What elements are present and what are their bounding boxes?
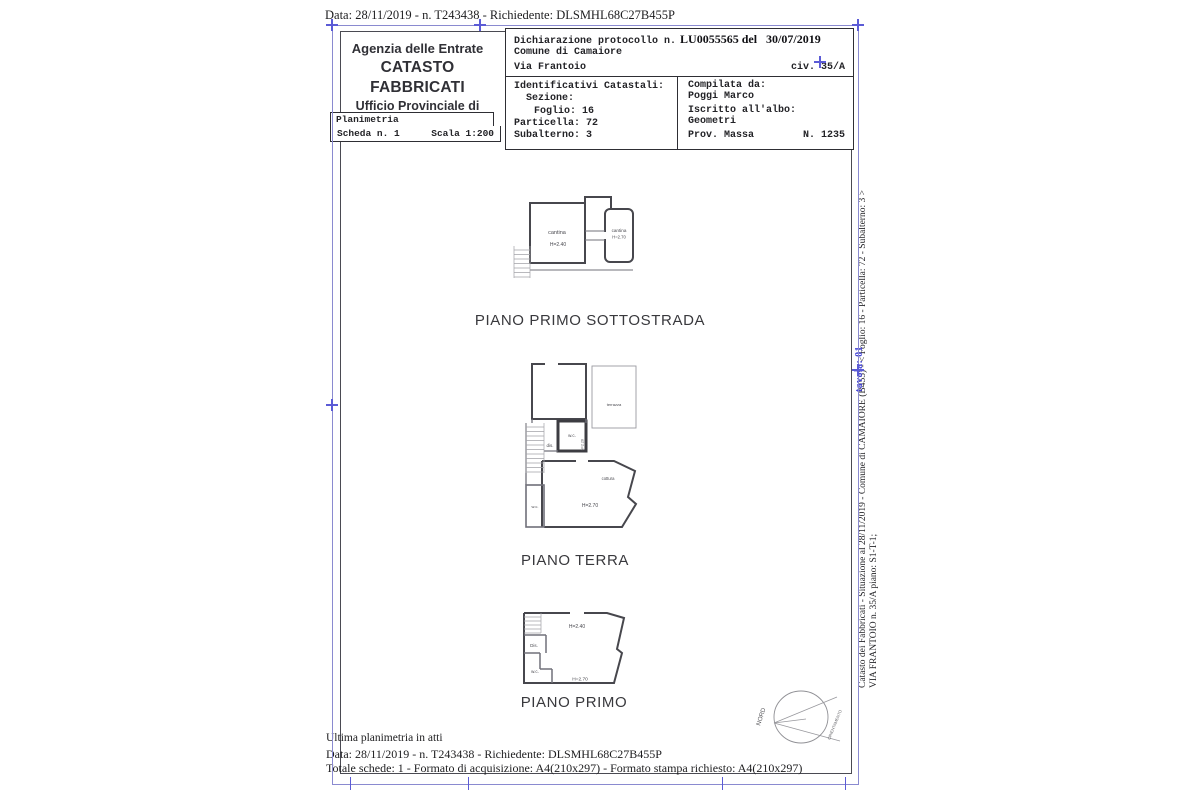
scheda-number: Scheda n. 1 (337, 128, 400, 139)
protocol-date: 30/07/2019 (766, 32, 821, 46)
footer-format-line: Totale schede: 1 - Formato di acquisizio… (326, 761, 802, 776)
compilata-da-label: Compilata da: (688, 81, 845, 92)
room-height-top: H=2.40 (569, 624, 585, 630)
sezione-value: Sezione: (514, 93, 677, 105)
ultima-planimetria-note: Ultima planimetria in atti (326, 732, 443, 744)
plan-title-primo: PIANO PRIMO (429, 694, 719, 711)
registration-tick (350, 777, 351, 790)
request-data-line: Data: 28/11/2019 - n. T243438 - Richiede… (325, 8, 675, 23)
cadastral-identifiers-section: Identificativi Catastali: Sezione: Fogli… (506, 76, 678, 149)
room-label-cantina-right: cantina (612, 228, 627, 233)
provincia-value: Prov. Massa (688, 131, 754, 142)
side-caption-line1: Catasto dei Fabbricati - Situazione al 2… (858, 223, 869, 688)
terrazza-outline (592, 366, 636, 428)
registration-mark (326, 399, 338, 411)
civic-number: civ. 35/A (791, 62, 845, 73)
protocol-line: Dichiarazione protocollo n.LU0055565del3… (514, 32, 821, 47)
albo-number: N. 1235 (803, 131, 845, 142)
albo-value: Geometri (688, 117, 845, 128)
compass-orientation-diagram: NORD ORIENTAMENTO (744, 680, 856, 758)
identificativi-title: Identificativi Catastali: (514, 81, 677, 93)
particella-value: Particella: 72 (514, 118, 677, 130)
compiler-section: Compilata da: Poggi Marco Iscritto all'a… (679, 76, 853, 149)
scheda-scala-box: Scheda n. 1 Scala 1:200 (330, 126, 501, 142)
side-blue-stamp: tavola: 01 (854, 346, 865, 392)
room-label-cantina-left: cantina (548, 230, 567, 236)
cadastral-document-page: Data: 28/11/2019 - n. T243438 - Richiede… (0, 0, 1200, 800)
declaration-address-section: Dichiarazione protocollo n.LU0055565del3… (506, 29, 853, 77)
comune-line: Comune di Camaiore (514, 47, 622, 58)
room-height-wc-top: H=2.20 (581, 439, 585, 451)
declaration-box: Dichiarazione protocollo n.LU0055565del3… (505, 28, 854, 150)
protocol-number: LU0055565 (680, 32, 739, 46)
registration-tick (468, 777, 469, 790)
registration-tick (845, 777, 846, 790)
room-label-wc: w.c. (531, 669, 539, 674)
registration-tick (722, 777, 723, 790)
room-label-dis: Dis. (530, 643, 538, 648)
room-height-left: H=2.40 (550, 242, 566, 248)
footer-request-line: Data: 28/11/2019 - n. T243438 - Richiede… (326, 747, 662, 762)
scala-value: Scala 1:200 (431, 128, 494, 139)
room-label-terrazza: terrazza (607, 402, 622, 407)
street-line: Via Frantoio (514, 62, 586, 73)
staircase (524, 613, 541, 633)
catasto-fabbricati-title: CATASTO FABBRICATI (345, 58, 490, 98)
side-caption-line2: VIA FRANTOIO n. 35/A piano: S1-T-1; (869, 223, 880, 688)
room-height-right: H=2.70 (612, 235, 626, 240)
room-height-main: H=2.70 (572, 677, 588, 683)
staircase (514, 246, 530, 278)
compiler-name: Poggi Marco (688, 92, 845, 103)
room-label-dis: dis. (546, 443, 553, 448)
floorplan-piano-terra: w.c. H=2.20 dis. terrazza cottura H=2.70… (518, 357, 643, 535)
plan-title-terra: PIANO TERRA (430, 552, 720, 569)
protocol-del: del (742, 32, 757, 46)
floorplan-piano-primo: H=2.40 Dis. w.c. H=2.70 (514, 605, 639, 692)
side-rotated-caption: Catasto dei Fabbricati - Situazione al 2… (858, 223, 880, 688)
subalterno-value: Subalterno: 3 (514, 130, 677, 142)
floorplan-piano-primo-sottostrada: cantina H=2.40 cantina H=2.70 (512, 194, 642, 286)
protocol-prefix: Dichiarazione protocollo n. (514, 36, 676, 47)
albo-label: Iscritto all'albo: (688, 106, 845, 117)
compass-north-label: NORD (755, 707, 767, 727)
foglio-value: Foglio: 16 (514, 106, 677, 118)
room-label-cottura: cottura (602, 476, 615, 481)
room-height-main: H=2.70 (582, 503, 598, 509)
room-label-wc-top: w.c. (568, 433, 576, 438)
plan-title-sottostrada: PIANO PRIMO SOTTOSTRADA (430, 312, 750, 329)
room-label-wc-left: w.c. (532, 504, 539, 509)
agency-name: Agenzia delle Entrate (345, 40, 490, 58)
compass-orientamento-label: ORIENTAMENTO (826, 709, 843, 740)
